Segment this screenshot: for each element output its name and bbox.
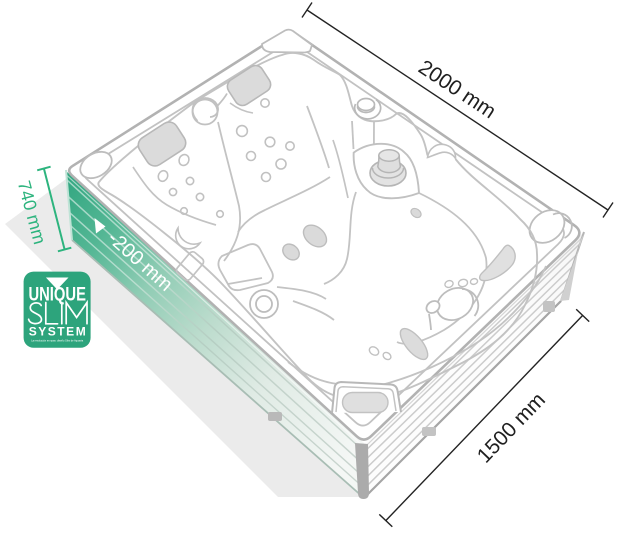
svg-text:La revolución en spas: diseño: La revolución en spas: diseño Slim de Aq…	[31, 339, 83, 343]
svg-text:SYSTEM: SYSTEM	[29, 325, 86, 339]
